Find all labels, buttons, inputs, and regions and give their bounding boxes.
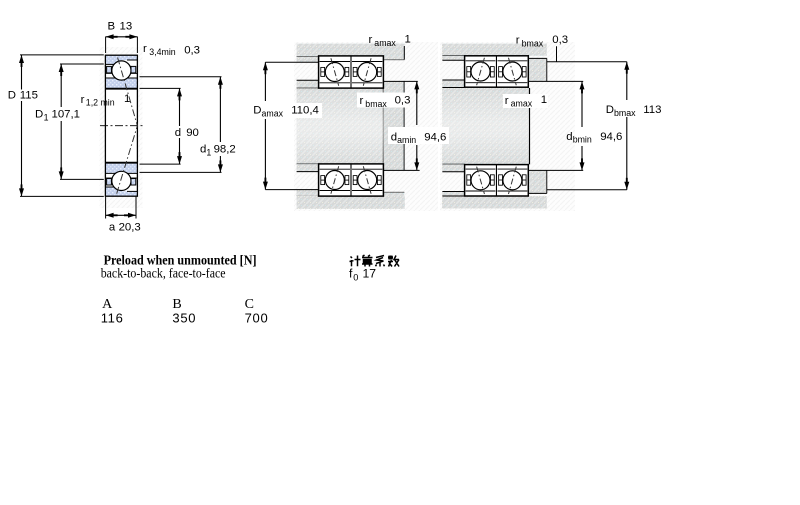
svg-text:1: 1: [206, 147, 211, 157]
svg-text:115: 115: [20, 90, 38, 102]
svg-text:a: a: [109, 222, 116, 234]
svg-text:94,6: 94,6: [424, 131, 446, 143]
svg-text:110,4: 110,4: [291, 105, 319, 117]
svg-text:17: 17: [363, 267, 377, 281]
svg-text:1: 1: [44, 112, 49, 122]
svg-text:d: d: [200, 144, 206, 156]
svg-text:90: 90: [186, 127, 199, 139]
svg-text:d: d: [175, 127, 181, 139]
svg-text:94,6: 94,6: [600, 131, 622, 143]
svg-text:amin: amin: [397, 135, 416, 145]
svg-text:bmax: bmax: [522, 38, 544, 48]
svg-text:1: 1: [541, 94, 547, 106]
svg-text:0,3: 0,3: [552, 34, 568, 46]
svg-text:3,4min: 3,4min: [149, 47, 176, 57]
svg-text:d: d: [566, 131, 572, 143]
svg-text:r: r: [516, 35, 520, 47]
svg-text:D: D: [606, 104, 614, 116]
svg-text:0: 0: [353, 272, 358, 282]
svg-text:bmax: bmax: [365, 99, 387, 109]
svg-text:116: 116: [101, 310, 124, 325]
svg-text:98,2: 98,2: [214, 144, 236, 156]
svg-text:r: r: [143, 43, 147, 55]
svg-text:D: D: [8, 90, 16, 102]
svg-text:113: 113: [643, 104, 661, 116]
svg-text:back-to-back, face-to-face: back-to-back, face-to-face: [101, 267, 226, 282]
svg-text:20,3: 20,3: [119, 222, 141, 234]
svg-text:d: d: [391, 131, 397, 143]
svg-text:amax: amax: [374, 38, 396, 48]
svg-text:B: B: [108, 20, 116, 32]
svg-text:1: 1: [405, 34, 411, 46]
svg-text:r: r: [81, 94, 85, 106]
svg-text:bmax: bmax: [614, 108, 636, 118]
svg-text:0,3: 0,3: [184, 45, 200, 57]
svg-text:700: 700: [245, 310, 269, 325]
svg-text:r: r: [505, 95, 509, 107]
svg-text:350: 350: [172, 310, 196, 325]
svg-text:bmin: bmin: [573, 135, 592, 145]
svg-text:107,1: 107,1: [52, 109, 81, 121]
svg-text:amax: amax: [511, 99, 533, 109]
svg-text:0,3: 0,3: [395, 94, 411, 106]
svg-text:1: 1: [124, 93, 130, 105]
svg-text:13: 13: [120, 20, 133, 32]
svg-text:1,2 min: 1,2 min: [86, 98, 115, 108]
svg-text:r: r: [369, 34, 373, 46]
svg-text:D: D: [35, 109, 43, 121]
svg-text:r: r: [360, 95, 364, 107]
svg-text:D: D: [253, 105, 261, 117]
svg-text:amax: amax: [262, 109, 284, 119]
